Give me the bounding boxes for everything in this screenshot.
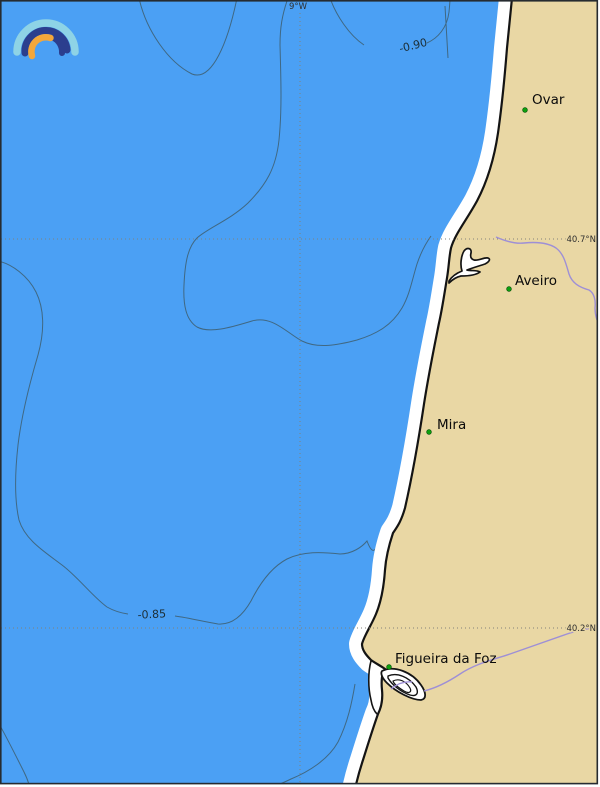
city-label-ovar: Ovar: [532, 92, 565, 108]
city-label-aveiro: Aveiro: [515, 273, 557, 289]
city-label-mira: Mira: [437, 417, 466, 433]
meridian-label: 9°W: [289, 2, 308, 12]
city-label-figueira-da-foz: Figueira da Foz: [395, 651, 497, 667]
parallel-label-40-2n: 40.2°N: [566, 624, 596, 634]
map-canvas[interactable]: 9°W 40.7°N 40.2°N -0.90 -0.85 Ovar Aveir…: [0, 0, 600, 787]
map-screen: 9°W 40.7°N 40.2°N -0.90 -0.85 Ovar Aveir…: [0, 0, 600, 787]
city-marker-aveiro: [507, 287, 512, 292]
contour-label-085: -0.85: [137, 607, 166, 621]
city-marker-ovar: [523, 108, 528, 113]
city-marker-mira: [427, 430, 432, 435]
city-marker-figueira-da-foz: [387, 665, 392, 670]
parallel-label-40-7n: 40.7°N: [566, 235, 596, 245]
